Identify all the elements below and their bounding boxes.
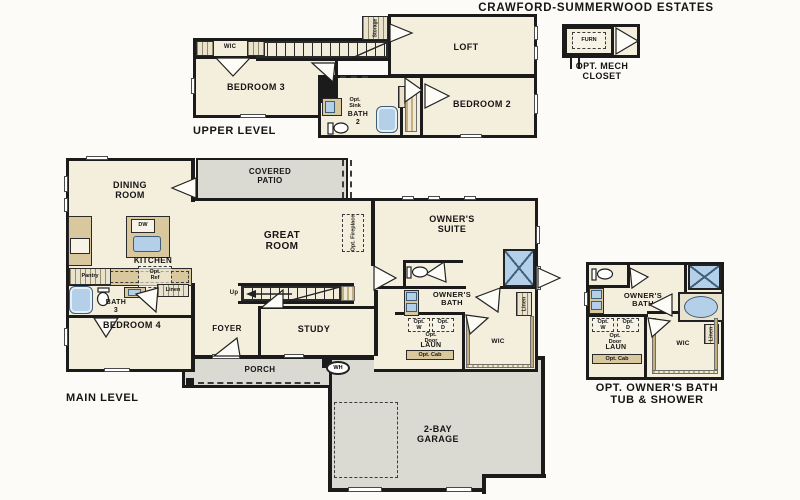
wall-hall-bed2: [420, 78, 423, 135]
dining-label: DINING ROOM: [98, 180, 162, 200]
opt-dryer-label: Opt. D: [432, 319, 454, 331]
bath3-label: BATH 3: [98, 299, 134, 315]
inset-caption: OPT. OWNER'S BATH TUB & SHOWER: [578, 382, 736, 407]
garage-option-dash: [334, 402, 398, 478]
wall-inset-bath-laun: [586, 314, 648, 317]
study-label: STUDY: [286, 324, 342, 334]
bedroom3-label: BEDROOM 3: [214, 82, 298, 92]
wic-tack: [652, 318, 656, 374]
loft-label: LOFT: [440, 42, 492, 52]
wic-tack: [714, 318, 718, 370]
door-swing: [538, 268, 560, 288]
wall-study-top: [258, 306, 377, 309]
wall-wic-bottom: [193, 56, 256, 59]
window: [64, 328, 68, 346]
wall-inset-toilet: [627, 264, 630, 288]
inset-wic-label: WIC: [666, 340, 700, 347]
stairs-main: [241, 286, 341, 301]
main-level-caption: MAIN LEVEL: [66, 392, 196, 404]
stairs-upper: [256, 41, 388, 58]
window: [402, 196, 414, 200]
dishwasher-label: DW: [131, 222, 155, 228]
wall-tub-hall: [400, 108, 403, 135]
sink-icon: [128, 289, 141, 296]
bedroom4-label: BEDROOM 4: [90, 320, 174, 330]
garage-door-opening: [348, 487, 382, 492]
wic-label: WIC: [212, 44, 248, 51]
wall-toilet-room: [403, 260, 406, 286]
up-label: Up: [224, 290, 244, 297]
covered-patio-label: COVERED PATIO: [238, 168, 302, 186]
patio-screen-dash: [350, 160, 352, 198]
shower-icon: [503, 249, 535, 287]
sink-icon: [591, 301, 602, 310]
furnace-label: FURN: [572, 37, 606, 43]
wic-tack: [466, 364, 534, 368]
wic-tack: [530, 316, 534, 368]
wall-inset-laun-wic: [644, 314, 647, 380]
great-room-label: GREAT ROOM: [252, 230, 312, 252]
wall-suite-bath: [374, 286, 466, 289]
window: [428, 196, 440, 200]
laun-label: LAUN: [416, 342, 446, 350]
window: [536, 226, 540, 244]
mech-caption: OPT. MECH CLOSET: [558, 61, 646, 81]
wall-toilet-room: [403, 260, 463, 263]
window: [86, 156, 108, 160]
window: [464, 196, 476, 200]
opt-washer-label: Opt. W: [408, 319, 430, 331]
opt-cab-label: Opt. Cab: [406, 352, 454, 358]
opt-washer-label: Opt. W: [592, 319, 614, 331]
window: [64, 176, 68, 192]
owners-bath-label: OWNER'S BATH: [424, 291, 480, 308]
wall-bed4-right: [191, 283, 195, 372]
opt-door-dash: [340, 76, 368, 78]
wic-tack: [466, 316, 470, 368]
range-icon: [70, 238, 90, 254]
upper-level-caption: UPPER LEVEL: [193, 125, 323, 137]
linen-label: Linen: [700, 324, 723, 344]
wall-inset-shower: [684, 262, 687, 292]
wall-bath3-bed4: [66, 315, 194, 318]
opt-cab-label: Opt. Cab: [592, 356, 642, 362]
opt-ref-label: Opt. Ref: [138, 269, 172, 281]
laun-label: LAUN: [599, 344, 633, 352]
window: [534, 26, 538, 40]
tub-icon: [69, 286, 93, 314]
garage-label: 2-BAY GARAGE: [402, 424, 474, 444]
wall-dining-patio: [191, 158, 195, 202]
linen-label: Linen: [512, 294, 536, 314]
garage-door-opening: [446, 487, 472, 492]
kitchen-sink-icon: [133, 236, 161, 252]
window: [534, 46, 538, 60]
stairs-wall: [256, 58, 388, 61]
wic-label: WIC: [480, 338, 516, 345]
foyer-label: FOYER: [204, 325, 250, 334]
porch-screen-dash: [198, 382, 320, 384]
stairs-closet: [341, 286, 355, 301]
opt-dryer-label: Opt. D: [617, 319, 639, 331]
wic-tack: [652, 370, 718, 374]
window: [460, 134, 482, 138]
hall-tack: [405, 90, 417, 132]
sink-icon: [406, 303, 417, 312]
sink-icon: [406, 292, 417, 301]
water-heater-icon: WH: [326, 361, 350, 375]
door-opening: [212, 354, 240, 359]
kitchen-label: KITCHEN: [122, 257, 184, 266]
tub-icon: [376, 106, 398, 133]
bedroom2-label: BEDROOM 2: [444, 99, 520, 109]
owners-suite-label: OWNER'S SUITE: [418, 214, 486, 234]
porch-column: [186, 378, 194, 387]
wall-foyer-study: [258, 309, 261, 356]
wall-laundry-wic: [462, 312, 465, 372]
floorplan-page: { "title": "CRAWFORD-SUMMERWOOD ESTATES"…: [0, 0, 800, 500]
plan-title: CRAWFORD-SUMMERWOOD ESTATES: [458, 2, 734, 15]
pantry-label: Pantry: [71, 273, 109, 279]
sink-icon: [325, 101, 335, 113]
shower-icon: [688, 264, 721, 290]
linen-label: Linen: [158, 287, 188, 293]
window: [64, 198, 68, 212]
opt-sink-label: Opt. Sink: [342, 97, 368, 109]
wall-study-right: [374, 290, 378, 356]
door-opening: [536, 266, 541, 290]
patio-screen-dash: [342, 160, 344, 198]
inset-owners-bath-label: OWNER'S BATH: [612, 292, 674, 309]
window: [104, 368, 130, 372]
window: [534, 94, 538, 114]
tub-icon: [684, 296, 718, 318]
wic-closet: [247, 41, 265, 56]
stairs-wall: [238, 301, 354, 304]
bath2-label: BATH 2: [342, 111, 374, 127]
storage-label: Storage: [360, 16, 390, 40]
window: [191, 78, 195, 94]
window: [584, 292, 588, 306]
opt-fireplace-label: Opt. Fireplace: [330, 214, 376, 252]
window: [240, 114, 266, 118]
window: [284, 354, 304, 358]
garage-corner-notch: [482, 474, 546, 494]
sink-icon: [591, 290, 602, 299]
porch-label: PORCH: [232, 366, 288, 375]
